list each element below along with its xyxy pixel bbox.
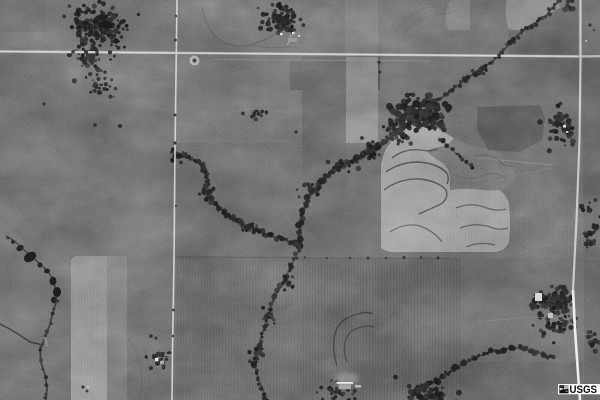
svg-text:USGS: USGS xyxy=(570,384,598,396)
